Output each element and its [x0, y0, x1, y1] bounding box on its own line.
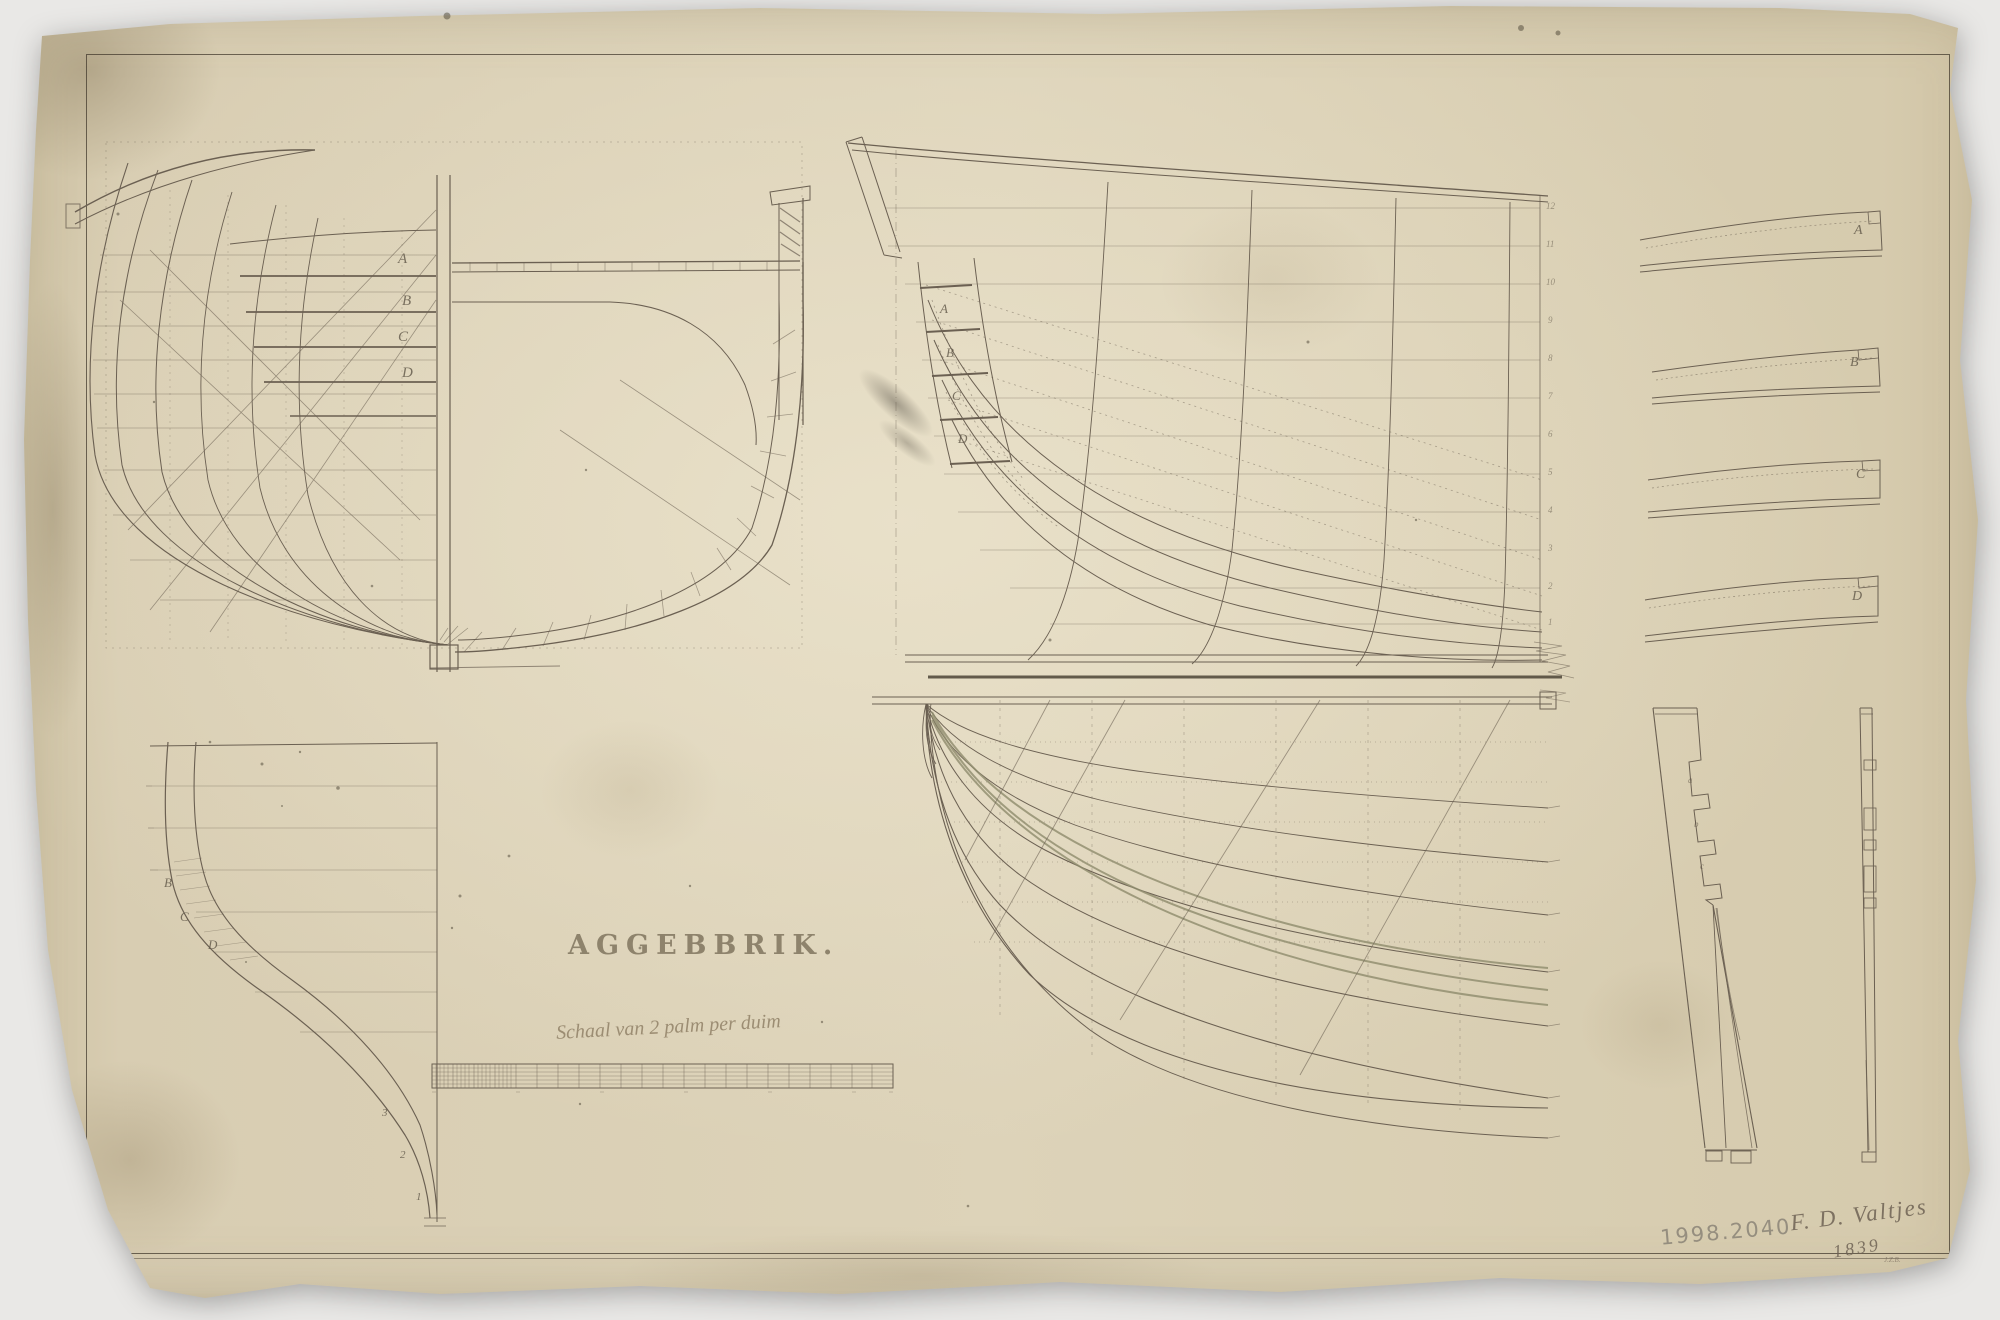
sheer-plan-label-d: D [958, 432, 967, 445]
stem-label-d: D [208, 938, 217, 951]
scan-background: AGGEBBRIK. Schaal van 2 palm per duim F.… [0, 0, 2000, 1304]
sternpost-label-c: c [1700, 862, 1704, 871]
stem-number-1: 1 [416, 1192, 422, 1203]
stem-label-b: B [164, 876, 172, 889]
stem-number-3: 3 [382, 1108, 388, 1119]
stem-label-c: C [180, 910, 189, 923]
plank-label-d: D [1852, 590, 1862, 604]
waterline-tick: 9 [1548, 316, 1553, 325]
waterline-tick: 2 [1548, 582, 1553, 591]
sternpost-label-b: b [1694, 820, 1699, 829]
stem-number-2: 2 [400, 1150, 406, 1161]
plank-detail-c [1648, 460, 1880, 518]
sheer-plan-label-c: C [952, 389, 961, 402]
waterline-tick: 4 [1548, 506, 1553, 515]
plan-title: AGGEBBRIK. [568, 930, 798, 961]
paper-specks [117, 13, 1561, 1208]
waterline-tick: 11 [1546, 240, 1554, 249]
sheer-plan-label-b: B [946, 346, 954, 359]
waterline-tick: 5 [1548, 468, 1553, 477]
sternpost-detail-drawing [1653, 708, 1757, 1163]
plank-detail-b [1652, 348, 1880, 404]
lines-plan-drawing [0, 0, 2000, 1304]
waterline-tick: 3 [1548, 544, 1553, 553]
body-plan-label-a: A [398, 252, 407, 267]
waterline-tick: 1 [1548, 618, 1553, 627]
plank-detail-a [1640, 211, 1882, 272]
body-plan-label-c: C [398, 330, 408, 345]
waterline-tick: 7 [1548, 392, 1553, 401]
half-breadth-plan-drawing [872, 692, 1560, 1138]
sheer-plan-drawing [846, 137, 1574, 702]
plank-label-a: A [1854, 224, 1863, 238]
sheer-plan-label-a: A [940, 302, 948, 315]
scale-bar [432, 1064, 893, 1092]
plank-detail-d [1645, 576, 1878, 642]
waterline-tick: 12 [1546, 202, 1555, 211]
sternpost-label-a: a [1688, 776, 1693, 785]
plank-label-c: C [1856, 468, 1865, 482]
keel-post-detail-drawing [1860, 708, 1876, 1162]
corner-mark: J.Z.B. [1884, 1256, 1901, 1264]
scanned-ship-plan: { "document": { "title": "AGGEBBRIK.", "… [0, 0, 2000, 1304]
body-plan-label-d: D [402, 366, 413, 381]
waterline-tick: 6 [1548, 430, 1553, 439]
waterline-tick: 8 [1548, 354, 1553, 363]
body-plan-label-b: B [402, 294, 411, 309]
body-plan-drawing [66, 142, 810, 672]
plank-label-b: B [1850, 356, 1859, 370]
waterline-tick: 10 [1546, 278, 1555, 287]
plank-details-drawing [1640, 211, 1882, 642]
